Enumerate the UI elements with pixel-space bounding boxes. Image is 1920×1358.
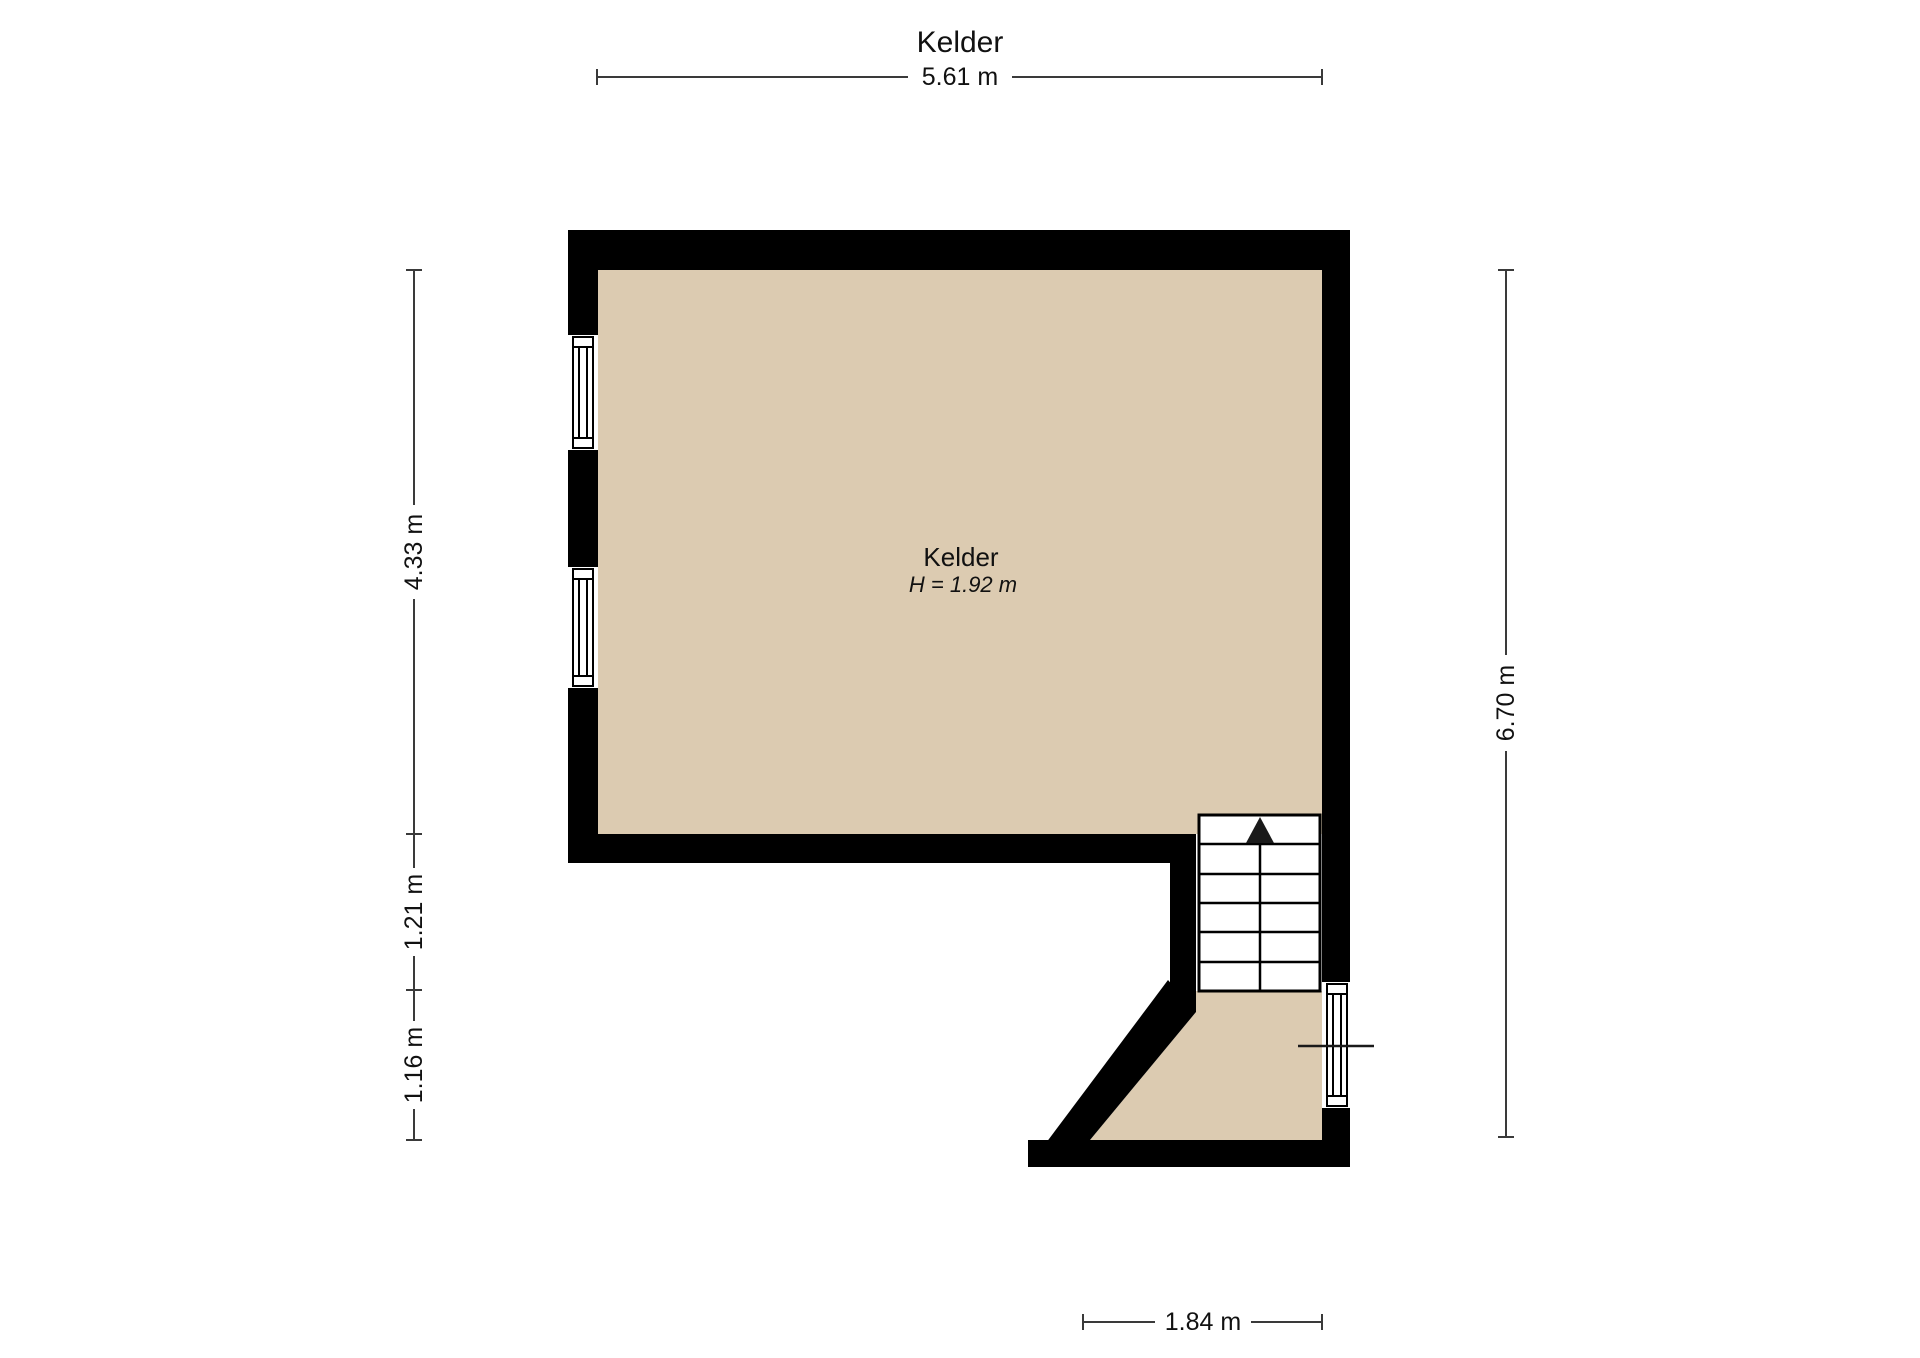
wall-bottom-main	[568, 834, 1196, 863]
room-name-label: Kelder	[923, 542, 998, 572]
wall-right-upper	[1322, 270, 1350, 982]
dim-label-left-2: 1.21 m	[400, 874, 428, 950]
floor-plan-page: Kelder 5.61 m 4.33 m 1.21 m 1.16 m 6.70 …	[0, 0, 1920, 1358]
dim-label-top: 5.61 m	[922, 63, 998, 91]
window-left-1	[568, 335, 598, 450]
wall-top	[568, 230, 1350, 270]
floors	[598, 270, 1322, 1140]
window-glazing	[579, 347, 587, 438]
dim-label-right: 6.70 m	[1492, 665, 1520, 741]
dimension-left	[406, 270, 422, 1140]
room-height-label: H = 1.92 m	[909, 572, 1017, 597]
plan-title: Kelder	[917, 26, 1004, 59]
dim-label-left-3: 1.16 m	[400, 1027, 428, 1103]
wall-bottom-entry	[1028, 1140, 1350, 1167]
floor-plan-canvas: Kelder 5.61 m 4.33 m 1.21 m 1.16 m 6.70 …	[0, 0, 1920, 1358]
dim-label-left-1: 4.33 m	[400, 514, 428, 590]
window-left-2	[568, 567, 598, 688]
staircase	[1199, 815, 1320, 991]
window-glazing	[579, 579, 587, 676]
dim-label-bottom: 1.84 m	[1165, 1308, 1241, 1336]
